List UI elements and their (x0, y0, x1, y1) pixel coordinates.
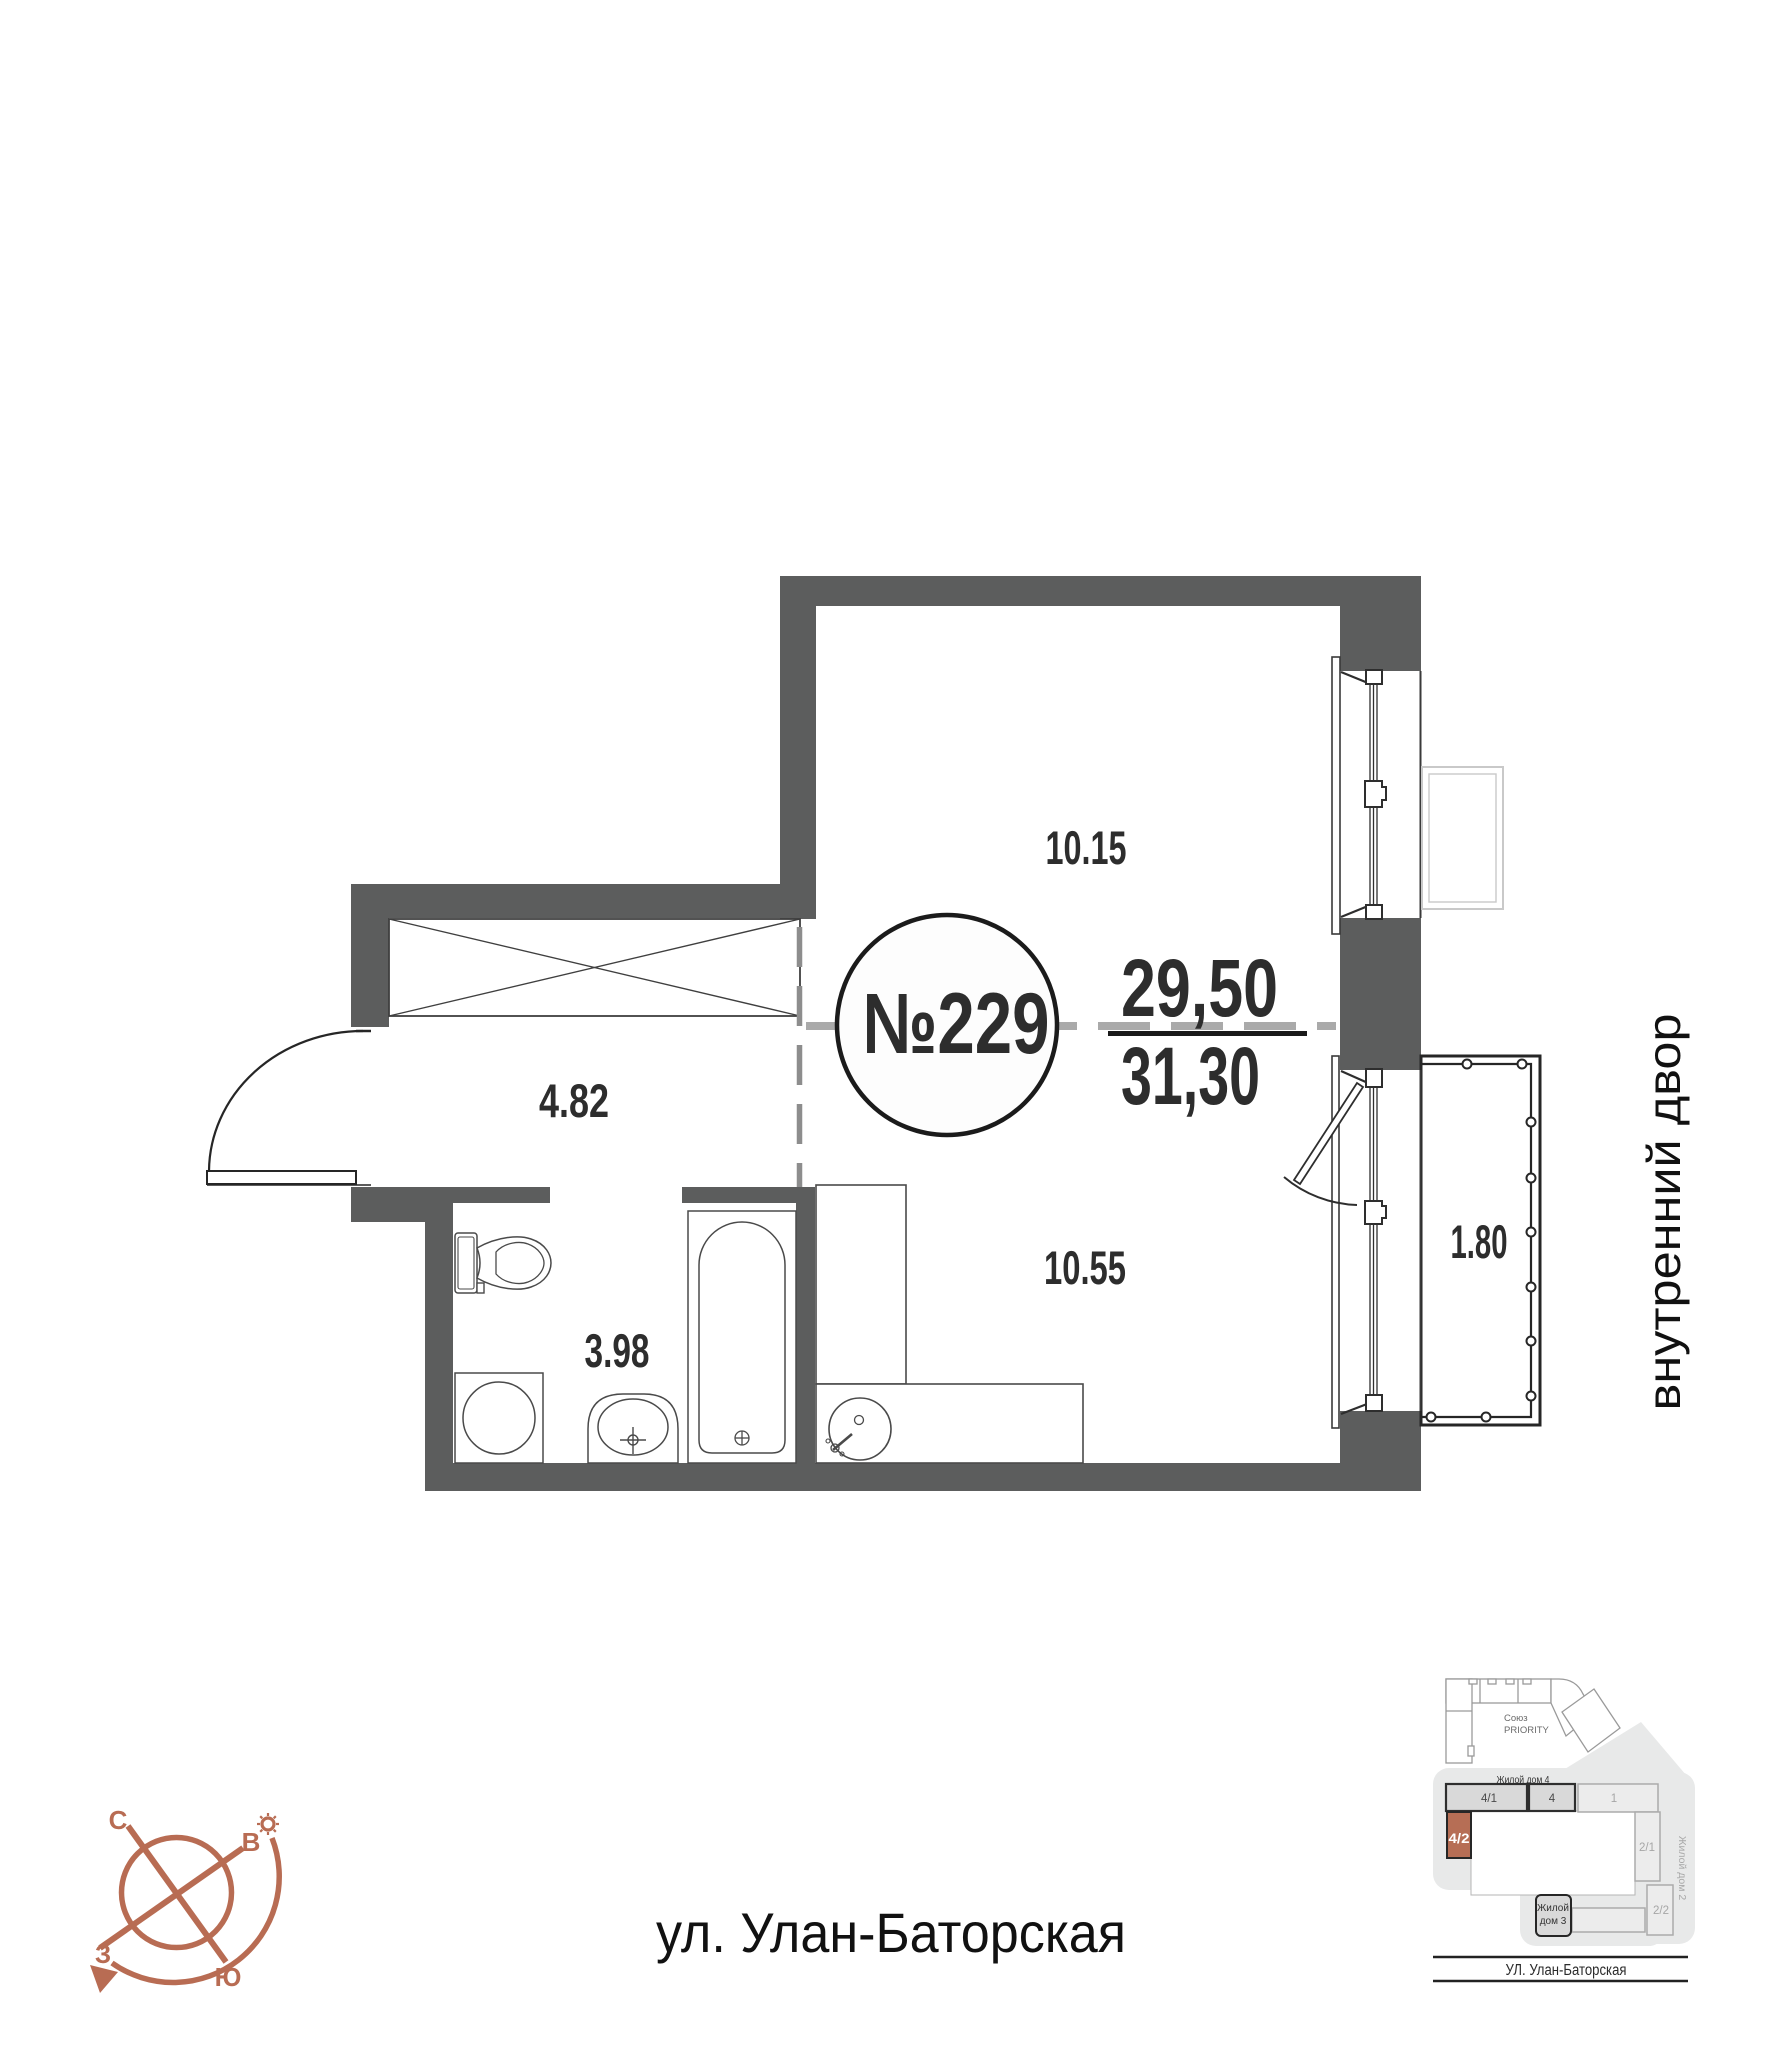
svg-text:4: 4 (1549, 1793, 1556, 1805)
svg-text:4.82: 4.82 (539, 1074, 609, 1127)
svg-text:10.55: 10.55 (1044, 1241, 1126, 1294)
svg-text:2/1: 2/1 (1639, 1842, 1655, 1854)
svg-text:1: 1 (1611, 1793, 1617, 1805)
svg-text:№229: №229 (863, 976, 1050, 1072)
svg-text:Союз: Союз (1504, 1713, 1528, 1724)
svg-text:3.98: 3.98 (585, 1324, 650, 1377)
svg-text:2/2: 2/2 (1653, 1905, 1669, 1917)
svg-text:31,30: 31,30 (1121, 1031, 1260, 1122)
svg-text:дом 3: дом 3 (1540, 1916, 1567, 1927)
svg-text:10.15: 10.15 (1046, 821, 1127, 874)
svg-text:З: З (95, 1939, 111, 1969)
svg-text:Жилой дом 2: Жилой дом 2 (1676, 1836, 1688, 1901)
svg-text:В: В (242, 1827, 261, 1857)
svg-text:УЛ. Улан-Баторская: УЛ. Улан-Баторская (1506, 1962, 1627, 1979)
svg-text:внутренний двор: внутренний двор (1638, 1014, 1690, 1411)
svg-text:4/2: 4/2 (1449, 1830, 1470, 1846)
svg-text:1.80: 1.80 (1451, 1215, 1508, 1268)
svg-text:ул. Улан-Баторская: ул. Улан-Баторская (656, 1901, 1126, 1964)
svg-text:Жилой: Жилой (1537, 1903, 1569, 1914)
svg-text:4/1: 4/1 (1481, 1793, 1497, 1805)
svg-text:Ю: Ю (215, 1962, 242, 1992)
svg-text:PRIORITY: PRIORITY (1504, 1725, 1550, 1736)
svg-text:С: С (109, 1805, 128, 1835)
svg-text:29,50: 29,50 (1121, 943, 1278, 1034)
svg-text:Жилой дом 4: Жилой дом 4 (1497, 1774, 1550, 1786)
